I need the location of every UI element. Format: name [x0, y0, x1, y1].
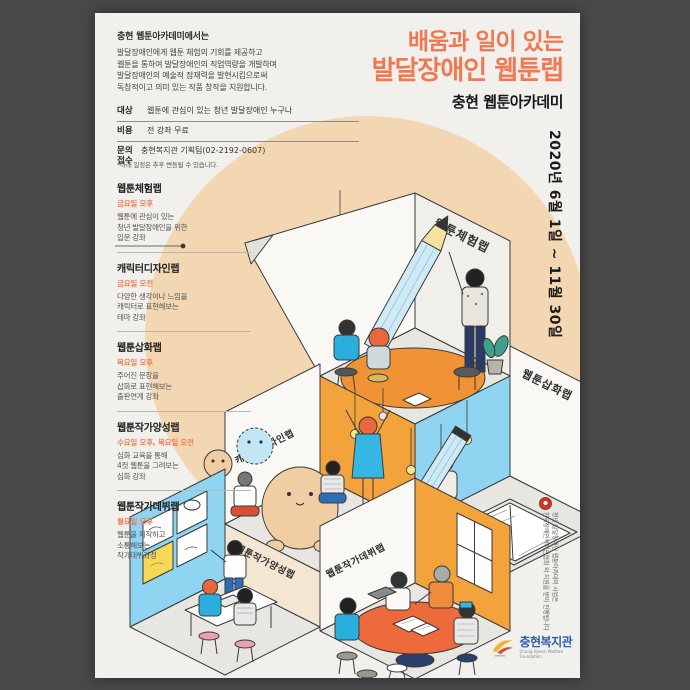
program-time: 금요일 오후 [117, 198, 251, 209]
program-desc: 다양한 생각이나 느낌을 [117, 292, 251, 303]
program-desc: 심화 교육을 통해 [117, 451, 251, 462]
program-time: 수요일 오후, 목요일 오전 [117, 437, 251, 448]
title-block: 배움과 일이 있는 발달장애인 웹툰랩 충현 웹툰아카데미 [320, 29, 563, 112]
program-time: 목요일 오후 [117, 357, 251, 368]
support-line: 청년 발달장애인 웹툰아카데미 사업은 [550, 512, 559, 631]
org-logo: 충현복지관 Chung Hyeon Welfare Foundation [491, 635, 580, 659]
info-row-cost: 비용 전 강좌 무료 [117, 121, 359, 141]
poster-title-line2: 발달장애인 웹툰랩 [320, 56, 563, 86]
support-line: 한국장애인복지관협회 외 지원을 받아 진행됩니다 [541, 512, 550, 631]
program-desc: 테마 강좌 [117, 313, 251, 324]
program-name: 웹툰체험랩 [117, 180, 251, 195]
program-time: 금요일 오전 [117, 278, 251, 289]
program-desc: 주어진 문장을 [117, 371, 251, 382]
program-item-debut: 웹툰작가데뷔랩 월요일 오후 웹툰을 제작하고 소통해보는 작가데뷔과정 [117, 490, 251, 570]
program-desc: 웹툰에 관심이 있는 [117, 212, 251, 223]
poster: 웹툰체험랩 [95, 13, 580, 678]
sponsor-seal-icon [539, 497, 552, 510]
program-item-illustration: 웹툰삽화랩 목요일 오후 주어진 문장을 삽화로 표현해보는 출판연계 강좌 [117, 331, 251, 411]
program-desc: 소통해보는 [117, 541, 251, 552]
org-name-en: Chung Hyeon Welfare Foundation [519, 649, 580, 659]
program-item-character: 캐릭터디자인랩 금요일 오전 다양한 생각이나 느낌을 캐릭터로 표현해보는 테… [117, 252, 251, 332]
program-item-training: 웹툰작가양성랩 수요일 오후, 목요일 오전 심화 교육을 통해 4컷 웹툰을 … [117, 411, 251, 491]
poster-title-line1: 배움과 일이 있는 [320, 29, 563, 56]
program-desc: 청년 발달장애인을 위한 [117, 223, 251, 234]
program-desc: 캐릭터로 표현해보는 [117, 302, 251, 313]
program-desc: 웹툰을 제작하고 [117, 530, 251, 541]
info-label: 비용 [117, 126, 147, 136]
info-value: 웹툰에 관심이 있는 청년 발달장애인 누구나 [147, 106, 292, 116]
empty-stools [357, 664, 407, 678]
info-value: 충현복지관 기획팀(02-2192-0607) [141, 146, 265, 156]
program-list: *아래 일정은 추후 변동될 수 있습니다. 웹툰체험랩 금요일 오후 웹툰에 … [117, 159, 251, 570]
info-label: 대상 [117, 106, 147, 116]
info-value: 전 강좌 무료 [147, 126, 189, 136]
program-time: 월요일 오후 [117, 516, 251, 527]
program-desc: 출판연계 강좌 [117, 392, 251, 403]
program-desc: 입문 강좌 [117, 233, 251, 244]
program-name: 웹툰작가양성랩 [117, 419, 251, 434]
program-name: 웹툰작가데뷔랩 [117, 498, 251, 513]
program-name: 캐릭터디자인랩 [117, 260, 251, 275]
period-vertical-text: 2020년 6월 1일 ~ 11월 30일 [545, 130, 565, 338]
support-vertical-text: 청년 발달장애인 웹툰아카데미 사업은 한국장애인복지관협회 외 지원을 받아 … [541, 512, 559, 631]
program-desc: 4컷 웹툰을 그려보는 [117, 461, 251, 472]
program-desc: 심화 강좌 [117, 472, 251, 483]
program-desc: 작가데뷔과정 [117, 551, 251, 562]
program-name: 웹툰삽화랩 [117, 339, 251, 354]
schedule-note: *아래 일정은 추후 변동될 수 있습니다. [117, 159, 251, 169]
program-desc: 삽화로 표현해보는 [117, 382, 251, 393]
org-name: 충현복지관 [519, 636, 580, 649]
poster-subtitle: 충현 웹툰아카데미 [320, 91, 563, 112]
welfare-center-bird-icon [491, 635, 514, 659]
program-item-experience: 웹툰체험랩 금요일 오후 웹툰에 관심이 있는 청년 발달장애인을 위한 입문 … [117, 173, 251, 252]
